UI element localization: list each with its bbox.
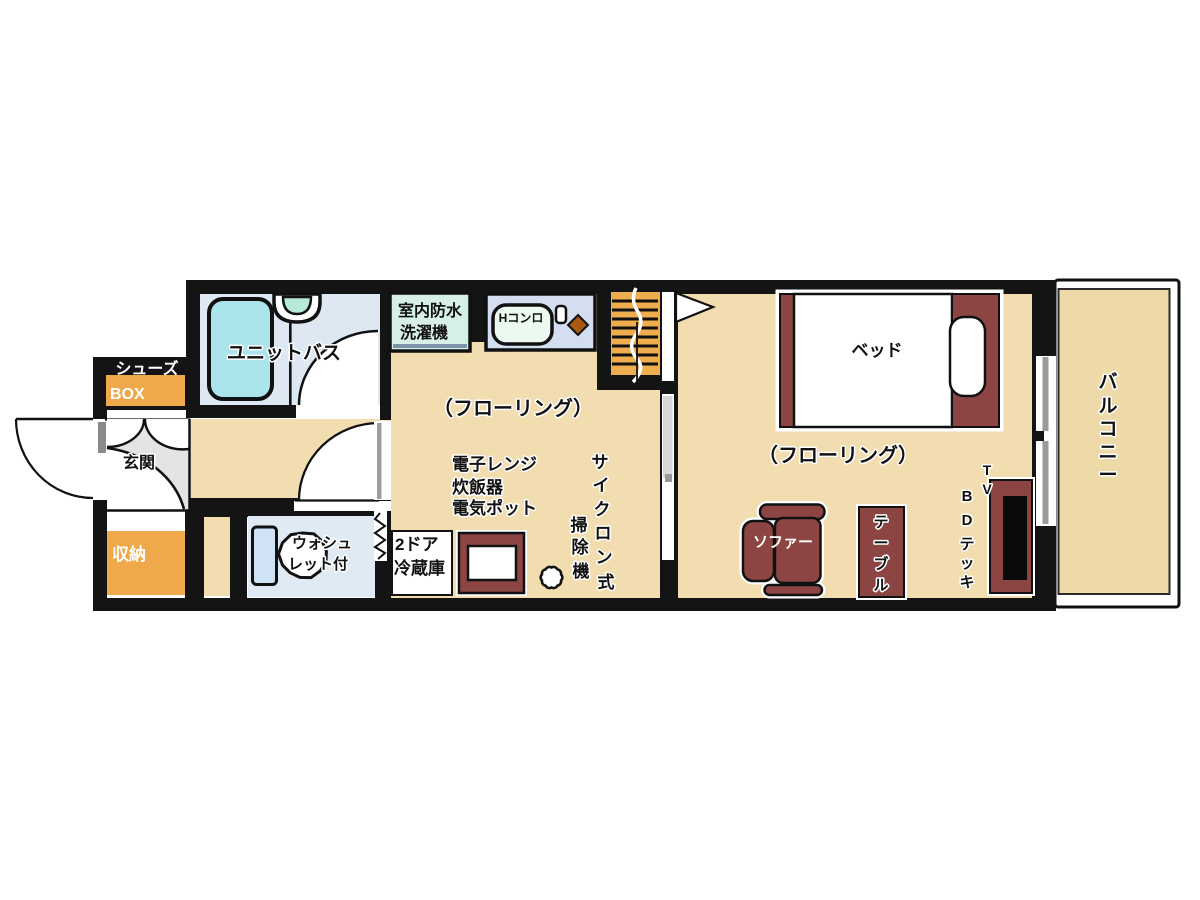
svg-text:2ドア: 2ドア [395,535,438,554]
svg-text:（フローリング）: （フローリング） [758,443,918,467]
svg-text:玄関: 玄関 [123,453,155,472]
svg-text:BOX: BOX [110,386,145,403]
svg-text:洗濯機: 洗濯機 [400,323,448,342]
svg-text:ル: ル [873,577,888,594]
svg-text:ベッド: ベッド [852,341,903,360]
svg-text:V: V [982,481,992,497]
svg-text:D: D [962,512,973,529]
svg-text:ッ: ッ [959,555,974,572]
svg-text:冷蔵庫: 冷蔵庫 [394,558,445,578]
svg-text:炊飯器: 炊飯器 [452,477,504,497]
svg-text:Hコンロ: Hコンロ [499,311,544,325]
svg-text:ソファー: ソファー [753,534,813,551]
svg-text:ニ: ニ [1098,442,1117,463]
svg-text:機: 機 [573,561,590,581]
svg-text:ウォシュ: ウォシュ [292,535,352,552]
svg-text:B: B [962,488,973,505]
svg-text:電子レンジ: 電子レンジ [452,455,537,474]
svg-text:サ: サ [592,453,609,472]
svg-text:T: T [983,462,992,478]
svg-text:（フローリング）: （フローリング） [433,396,593,420]
svg-text:レット付: レット付 [288,555,348,573]
svg-text:室内防水: 室内防水 [398,301,463,320]
svg-text:ー: ー [1098,465,1117,486]
svg-text:コ: コ [1098,419,1117,440]
svg-text:ブ: ブ [873,555,888,573]
svg-text:ン: ン [596,548,613,567]
svg-text:ー: ー [873,535,888,552]
svg-text:テ: テ [873,514,888,531]
svg-text:テ: テ [959,536,974,553]
svg-text:ロ: ロ [595,524,612,543]
svg-text:収納: 収納 [112,544,146,564]
svg-text:電気ポット: 電気ポット [452,498,537,518]
svg-text:ユニットバス: ユニットバス [227,342,341,364]
svg-text:式: 式 [598,572,615,592]
svg-text:除: 除 [572,537,590,557]
svg-text:ル: ル [1098,396,1117,417]
svg-text:バ: バ [1098,371,1117,393]
svg-text:キ: キ [959,574,974,591]
svg-text:ク: ク [594,500,611,519]
svg-text:掃: 掃 [571,516,588,535]
svg-text:イ: イ [593,476,610,495]
